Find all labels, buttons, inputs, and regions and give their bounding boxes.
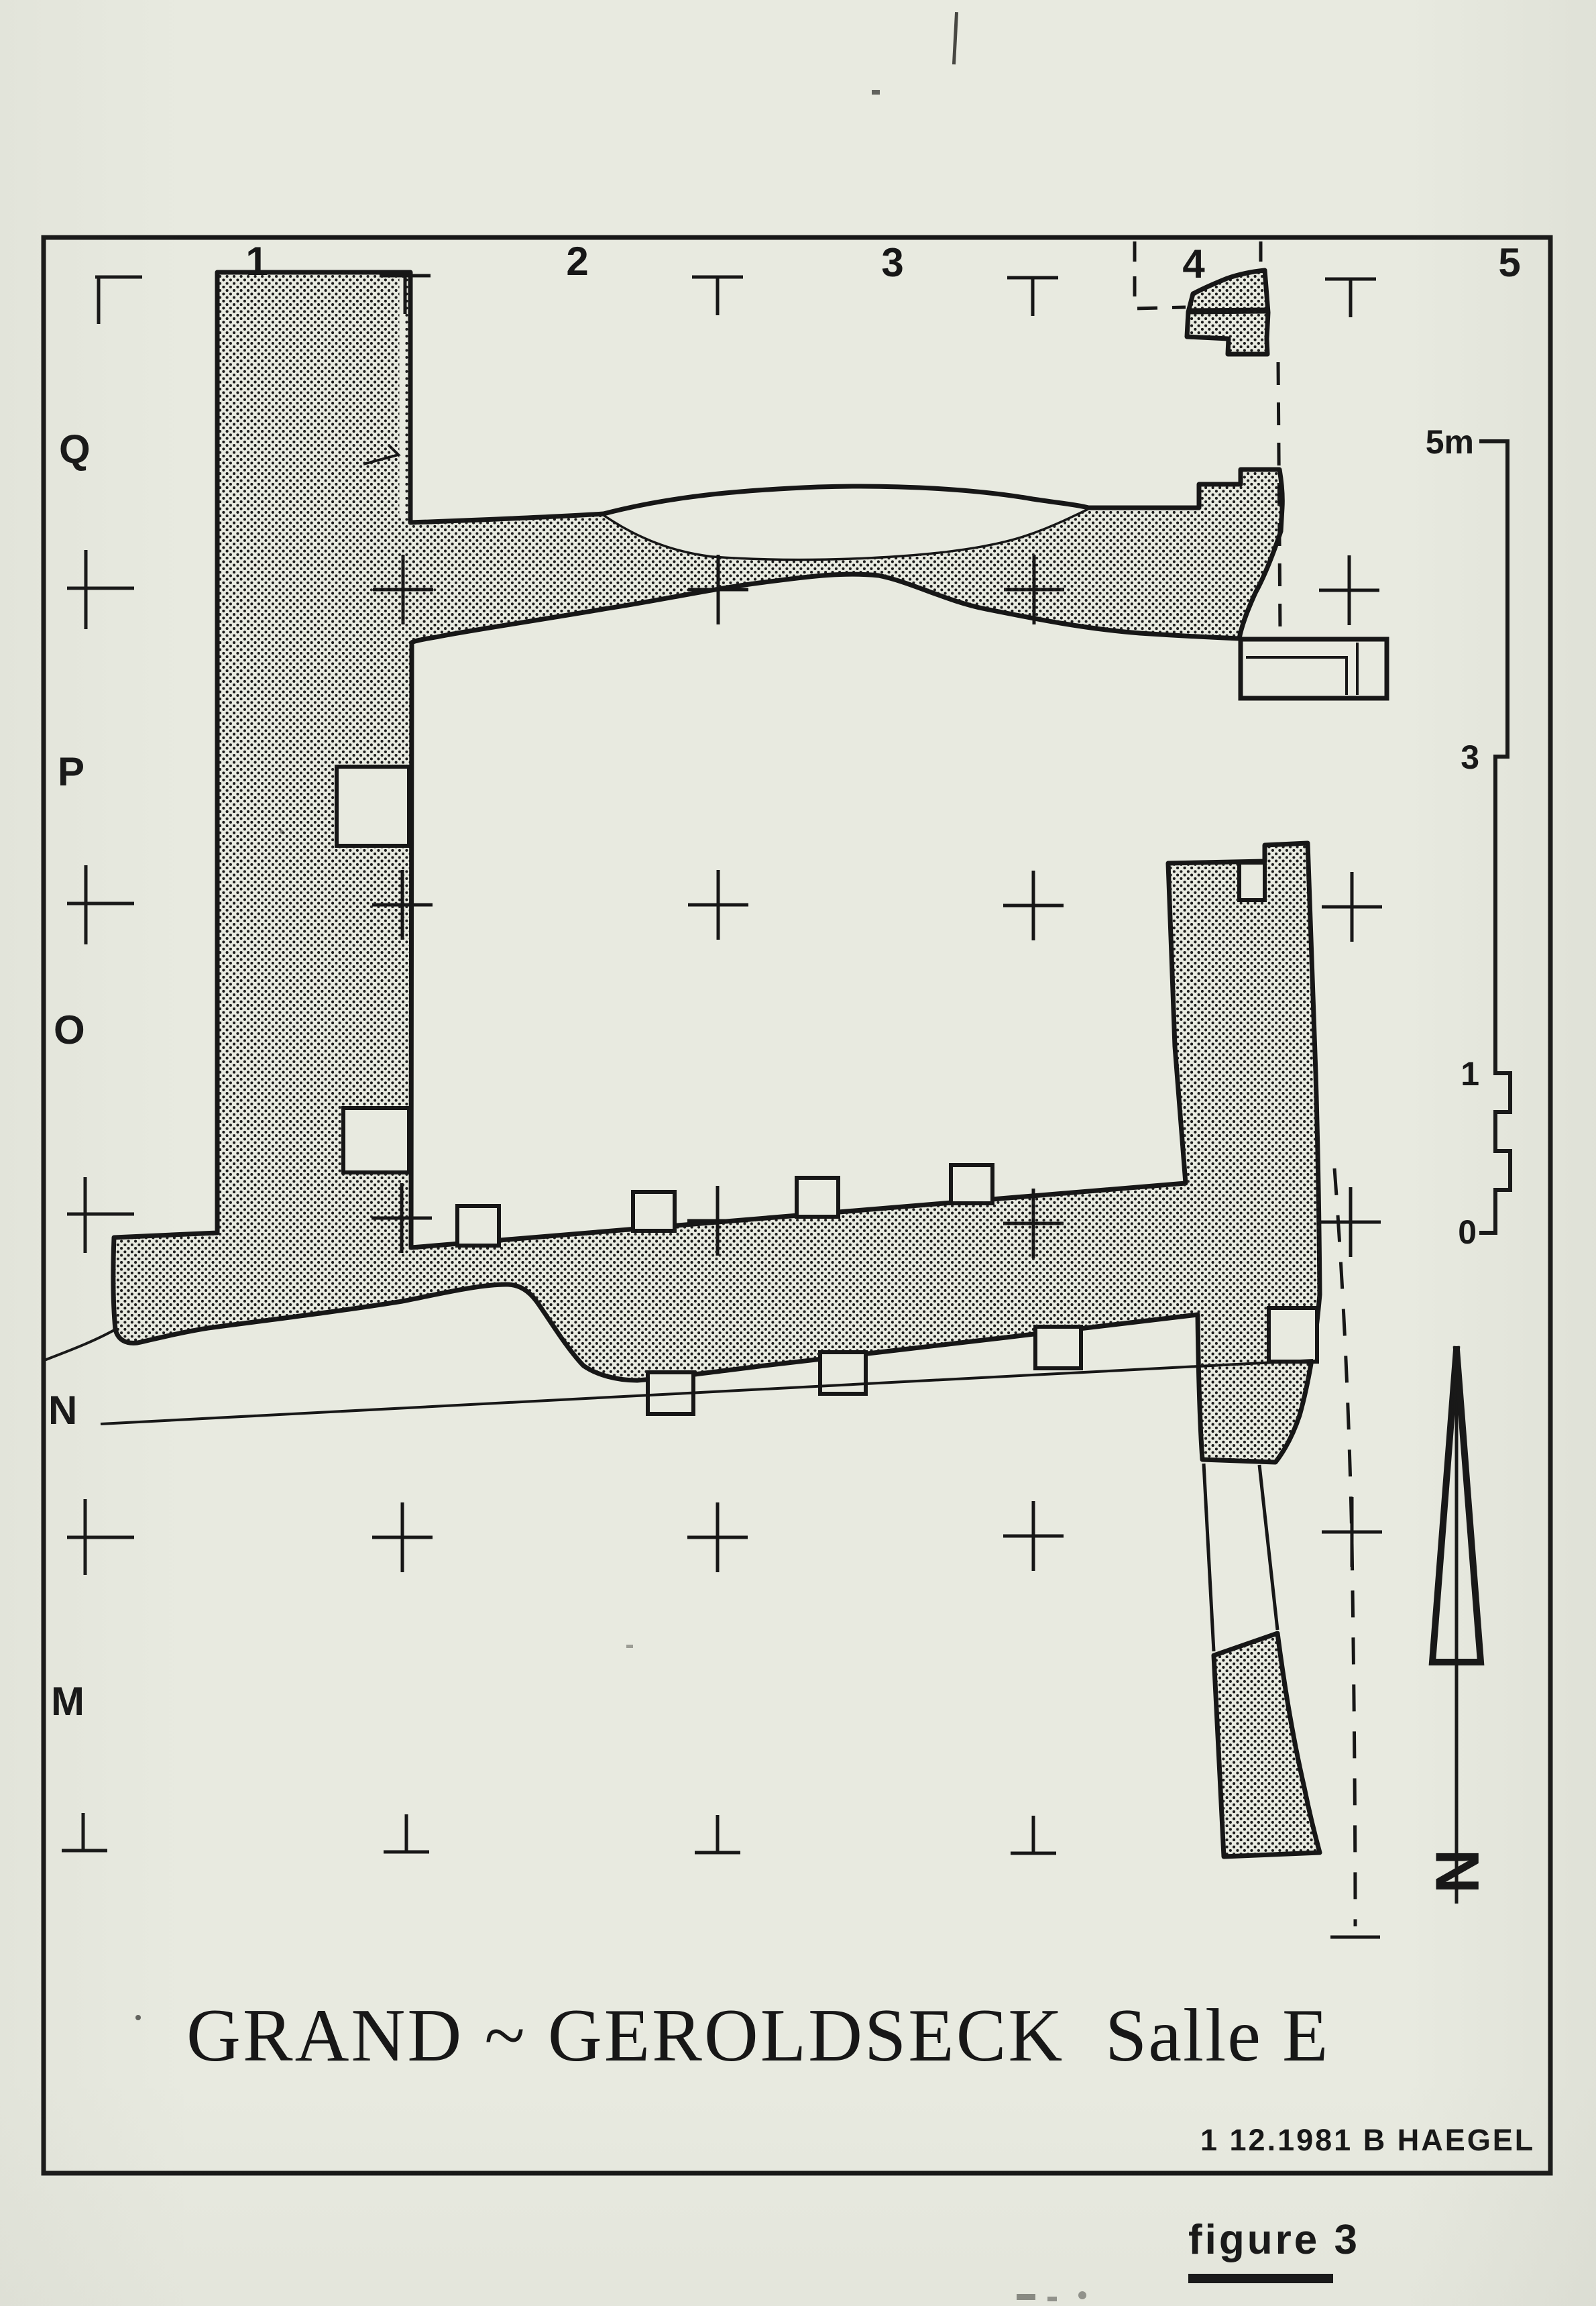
grid-mark-cross bbox=[1322, 872, 1382, 942]
west-wall-notch-upper bbox=[337, 767, 409, 846]
figure-caption-text: figure 3 bbox=[1188, 2217, 1360, 2263]
dashed-wall-line-upper bbox=[1278, 362, 1280, 633]
doorway-threshold bbox=[1241, 639, 1387, 698]
plan-title-room: Salle E bbox=[1105, 1994, 1329, 2077]
column-label-3: 3 bbox=[881, 240, 903, 285]
row-label-P: P bbox=[58, 749, 84, 794]
grid-mark-bottom bbox=[695, 1815, 740, 1853]
plan-signature-date: 1 12.1981 B HAEGEL bbox=[1200, 2123, 1535, 2157]
scan-speck bbox=[872, 90, 880, 95]
wall-main-mass bbox=[113, 272, 1320, 1462]
west-wall-notch-lower bbox=[343, 1108, 409, 1172]
figure-caption: figure 3 bbox=[1188, 2217, 1360, 2283]
east-wall-break-gap-left-edge bbox=[1204, 1464, 1214, 1651]
column-label-5: 5 bbox=[1498, 240, 1520, 285]
column-label-1: 1 bbox=[245, 239, 268, 284]
east-wall-break-gap-right-edge bbox=[1259, 1465, 1277, 1630]
grid-mark-top bbox=[692, 277, 743, 315]
scale-label-3: 3 bbox=[1461, 738, 1479, 776]
scan-speck bbox=[1017, 2294, 1035, 2300]
scale-label-1: 1 bbox=[1461, 1055, 1479, 1093]
scan-scratch bbox=[952, 12, 958, 64]
grid-mark-corner-tl bbox=[95, 277, 142, 324]
plan-figure: 1 2 3 4 5 Q P O N M 5m 3 1 0 N GRAND ~ G… bbox=[0, 0, 1596, 2306]
dashed-corner-left bbox=[1135, 241, 1186, 309]
scan-speck bbox=[280, 830, 284, 834]
scale-label-5m: 5m bbox=[1426, 423, 1474, 461]
east-wall-top-notch bbox=[1239, 863, 1265, 900]
grid-mark-cross bbox=[1320, 1187, 1381, 1257]
north-arrow-label: N bbox=[1423, 1849, 1491, 1893]
grid-mark-cross bbox=[1003, 871, 1064, 940]
north-arrow-icon: N bbox=[1423, 1350, 1491, 1904]
scale-label-0: 0 bbox=[1458, 1213, 1477, 1251]
scan-speck bbox=[1047, 2297, 1057, 2301]
row-label-M: M bbox=[51, 1679, 84, 1724]
plan-title: GRAND ~ GEROLDSECK bbox=[186, 1994, 1064, 2077]
grid-mark-cross bbox=[1322, 1497, 1382, 1567]
scan-speck bbox=[626, 1645, 633, 1648]
grid-mark-bottom bbox=[1011, 1816, 1056, 1853]
grid-mark-left bbox=[67, 550, 134, 629]
scanned-plan-page: 1 2 3 4 5 Q P O N M 5m 3 1 0 N GRAND ~ G… bbox=[0, 0, 1596, 2306]
grid-mark-top bbox=[1007, 278, 1058, 316]
grid-mark-top bbox=[1325, 279, 1376, 317]
scale-bar-line bbox=[1479, 441, 1510, 1233]
scale-bar: 5m 3 1 0 bbox=[1426, 423, 1510, 1251]
grid-mark-cross bbox=[688, 870, 748, 940]
figure-caption-underline bbox=[1188, 2274, 1333, 2283]
grid-mark-cross bbox=[687, 1502, 748, 1572]
row-label-O: O bbox=[54, 1007, 85, 1052]
column-label-2: 2 bbox=[566, 239, 588, 284]
row-label-N: N bbox=[48, 1388, 77, 1433]
grid-mark-left bbox=[67, 1499, 134, 1575]
wall-masonry bbox=[113, 270, 1387, 1857]
excavation-edge-curve bbox=[44, 1329, 115, 1360]
grid-mark-cross bbox=[1003, 1501, 1064, 1571]
grid-mark-left bbox=[67, 865, 134, 944]
grid-mark-cross bbox=[1319, 555, 1379, 625]
scan-speck bbox=[135, 2015, 141, 2020]
grid-mark-cross bbox=[372, 1502, 433, 1572]
row-label-Q: Q bbox=[59, 427, 91, 472]
east-wall-lower-section bbox=[1214, 1633, 1320, 1857]
scan-speck bbox=[1078, 2291, 1086, 2299]
grid-mark-bottom bbox=[384, 1814, 429, 1852]
grid-mark-bottom bbox=[62, 1813, 107, 1851]
column-label-4: 4 bbox=[1182, 241, 1205, 286]
